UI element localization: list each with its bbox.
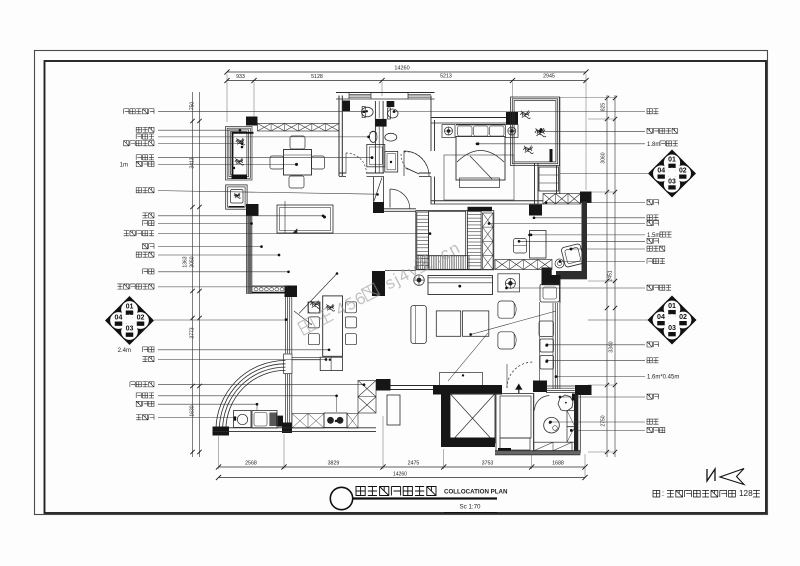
svg-text:750: 750 bbox=[190, 102, 196, 111]
svg-text:1m: 1m bbox=[120, 162, 128, 168]
svg-text:02: 02 bbox=[679, 313, 687, 321]
svg-text:1363: 1363 bbox=[183, 256, 189, 267]
svg-text:1.8m: 1.8m bbox=[647, 142, 660, 148]
svg-text:2475: 2475 bbox=[408, 461, 420, 467]
svg-text:01: 01 bbox=[668, 157, 676, 164]
svg-text:2.4m: 2.4m bbox=[118, 348, 131, 354]
svg-text:04: 04 bbox=[657, 168, 665, 175]
svg-text:2568: 2568 bbox=[245, 461, 257, 467]
svg-text:Sc 1:70: Sc 1:70 bbox=[460, 504, 482, 511]
svg-text:14260: 14260 bbox=[393, 472, 407, 478]
svg-text:2945: 2945 bbox=[543, 74, 555, 80]
svg-text::: : bbox=[662, 489, 664, 498]
svg-text:04: 04 bbox=[115, 314, 123, 322]
svg-text:5128: 5128 bbox=[311, 74, 323, 80]
svg-text:2451: 2451 bbox=[608, 270, 614, 281]
svg-text:01: 01 bbox=[126, 302, 134, 310]
svg-text:01: 01 bbox=[668, 302, 676, 310]
svg-text:02: 02 bbox=[137, 314, 145, 322]
svg-text:2750: 2750 bbox=[601, 415, 607, 426]
svg-text:3829: 3829 bbox=[328, 461, 340, 467]
svg-text:1630: 1630 bbox=[190, 405, 196, 416]
svg-text:3050: 3050 bbox=[190, 256, 196, 267]
svg-text:1.5m: 1.5m bbox=[647, 233, 660, 239]
svg-text:825: 825 bbox=[601, 103, 607, 112]
svg-text:02: 02 bbox=[679, 168, 687, 175]
svg-text:128: 128 bbox=[739, 489, 753, 498]
svg-text:COLLOCATION PLAN: COLLOCATION PLAN bbox=[444, 489, 508, 496]
svg-text:5213: 5213 bbox=[440, 74, 452, 80]
svg-text:14260: 14260 bbox=[394, 66, 409, 72]
svg-text:933: 933 bbox=[236, 74, 245, 80]
svg-text:1.6m*0.45m: 1.6m*0.45m bbox=[647, 375, 679, 381]
svg-text:3060: 3060 bbox=[601, 152, 607, 163]
svg-text:3753: 3753 bbox=[482, 461, 494, 467]
svg-text:1688: 1688 bbox=[552, 461, 564, 467]
svg-text:04: 04 bbox=[657, 313, 665, 321]
svg-text:3413: 3413 bbox=[190, 157, 196, 168]
svg-text:3773: 3773 bbox=[190, 327, 196, 338]
svg-text:3340: 3340 bbox=[609, 341, 615, 352]
